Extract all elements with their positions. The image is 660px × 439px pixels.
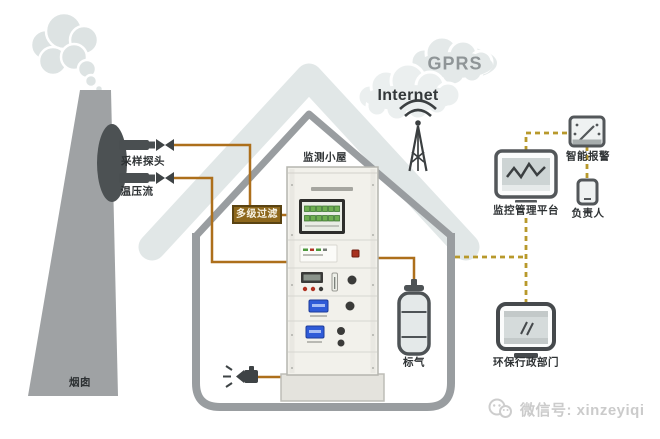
cems-diagram: 烟囱 采样探头 温压流 多级过滤 监测小屋 标气 GPRS Internet 监… — [0, 0, 660, 439]
phone-icon — [578, 180, 597, 204]
internet-label: Internet — [377, 87, 438, 105]
smart-alarm-icon — [570, 117, 604, 146]
person-in-charge-label: 负责人 — [572, 206, 605, 221]
chimney-label: 烟囱 — [69, 375, 91, 390]
temp-pressure-flow-probe-icon — [119, 172, 174, 184]
epa-department-label: 环保行政部门 — [493, 355, 559, 370]
filter-box-label: 多级过滤 — [232, 205, 282, 224]
watermark-text: 微信号: xinzeyiqi — [520, 399, 645, 420]
power-button — [352, 250, 359, 257]
cabinet-base — [281, 374, 384, 401]
cems-cabinet — [281, 167, 384, 401]
gas-cylinder-icon — [399, 279, 429, 354]
exhaust-nozzle-icon — [223, 366, 258, 387]
wechat-icon — [487, 398, 513, 420]
smoke-icon — [31, 13, 103, 93]
cabinet-body — [287, 167, 378, 375]
standard-gas-label: 标气 — [403, 355, 425, 370]
temp-pressure-flow-label: 温压流 — [121, 184, 154, 199]
diagram-canvas — [0, 0, 660, 439]
epa-monitor-icon — [498, 304, 554, 358]
platform-monitor-icon — [496, 151, 556, 205]
watermark: 微信号: xinzeyiqi — [487, 398, 645, 420]
sampling-probe-icon — [119, 139, 174, 151]
smart-alarm-label: 智能报警 — [566, 149, 610, 164]
monitor-cabin-label: 监测小屋 — [303, 150, 347, 165]
chimney-icon — [28, 90, 127, 396]
platform-label: 监控管理平台 — [491, 203, 561, 218]
probe-label: 采样探头 — [121, 154, 165, 169]
cabinet-nameplate — [311, 187, 353, 191]
gprs-label: GPRS — [427, 54, 482, 75]
